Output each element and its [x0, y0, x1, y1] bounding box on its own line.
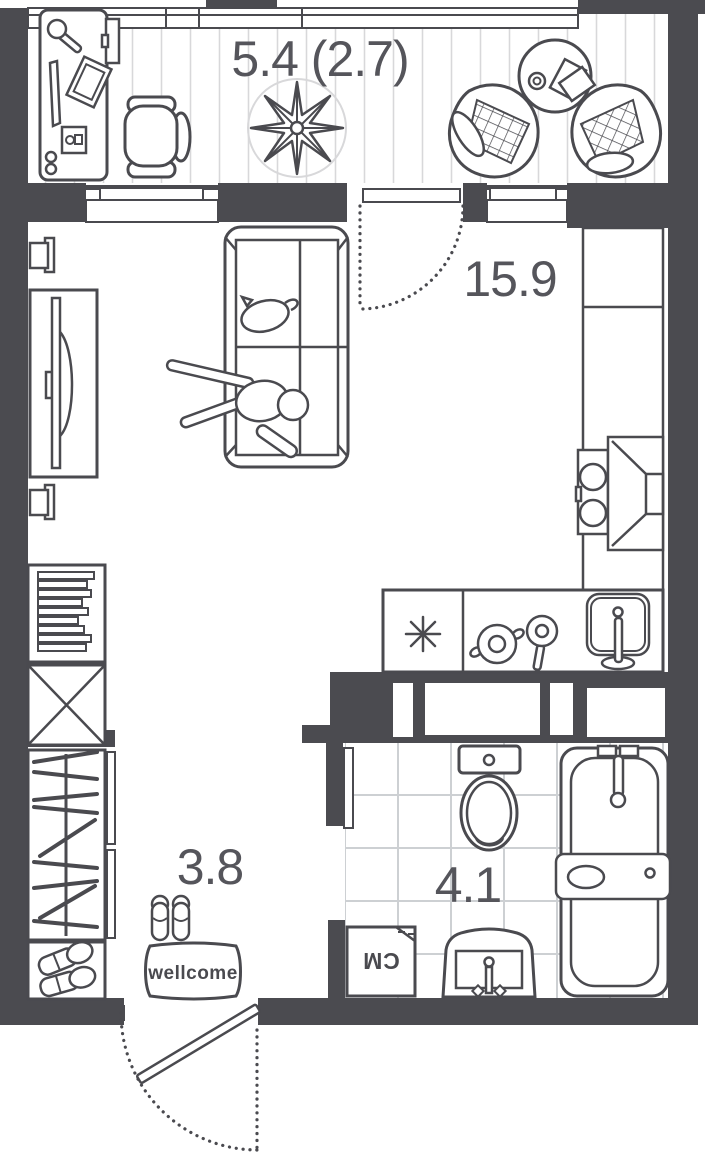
duct-box — [28, 665, 105, 745]
stool — [580, 464, 606, 490]
doormat: wellcome — [146, 943, 241, 999]
floor-plan: wellcome СМ — [0, 0, 705, 1152]
cup-icon — [46, 152, 56, 162]
bath-tray — [556, 854, 670, 899]
radiator — [30, 238, 54, 272]
floor-plan-canvas: wellcome СМ — [0, 0, 705, 1152]
person-head — [278, 390, 308, 420]
bathroom-door — [344, 748, 353, 828]
radiator — [30, 485, 54, 519]
cup-icon — [529, 73, 545, 89]
egg-chair-left — [446, 85, 538, 177]
plant — [248, 79, 346, 177]
tv-unit — [30, 290, 97, 477]
sofa — [225, 227, 348, 467]
bookshelf — [28, 565, 105, 662]
toilet — [459, 746, 520, 850]
balcony-door — [360, 189, 463, 309]
slippers-icon — [152, 896, 189, 940]
dining-set — [576, 437, 663, 550]
kitchen-counter — [383, 590, 663, 672]
service-shafts — [393, 683, 665, 737]
desk-device-icon — [62, 127, 86, 153]
faucet-icon — [615, 618, 622, 662]
washing-machine-label: СМ — [362, 948, 399, 974]
bathroom-area-label: 4.1 — [435, 857, 502, 913]
appliance-asterisk-icon — [406, 617, 440, 651]
bathroom-sink — [443, 929, 535, 997]
stool — [580, 500, 606, 526]
balcony-area-label: 5.4 (2.7) — [231, 31, 408, 87]
bathtub — [556, 746, 670, 996]
window-right — [487, 188, 567, 222]
desk — [40, 10, 119, 180]
cup-icon — [46, 164, 56, 174]
desk-shelf — [50, 61, 60, 126]
egg-chair-right — [572, 85, 661, 177]
doormat-label: wellcome — [147, 963, 238, 984]
shoe-shelf — [28, 938, 105, 999]
wardrobe-door-jambs — [107, 752, 115, 938]
wardrobe — [28, 750, 105, 940]
hallway-area-label: 3.8 — [177, 839, 244, 895]
entrance-door — [121, 1004, 260, 1150]
washing-machine: СМ — [347, 927, 415, 996]
window-left — [86, 188, 218, 222]
living-area-label: 15.9 — [463, 251, 556, 307]
